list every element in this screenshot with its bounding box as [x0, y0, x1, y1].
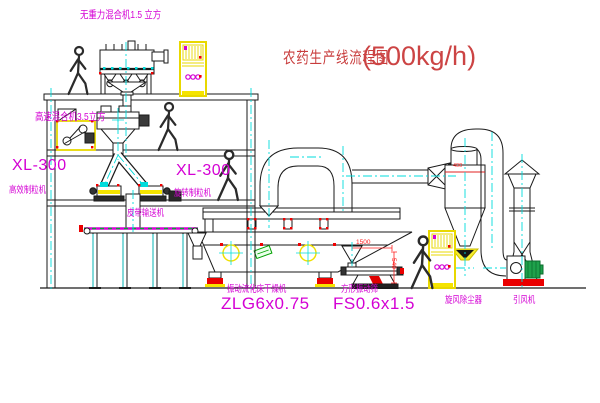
- control-cabinet-1: [180, 42, 206, 96]
- title-capacity: (500kg/h): [362, 43, 476, 70]
- worker-figure: [69, 47, 88, 94]
- belt-conveyor: [79, 225, 206, 288]
- dimension-screen-height: 540: [390, 258, 397, 269]
- cyclone-mark: 400: [453, 164, 462, 170]
- label-belt-conveyor: 皮带输送机: [127, 209, 164, 219]
- dimension-screen-length: 1500: [356, 240, 370, 247]
- induced-draft-fan: [503, 256, 544, 286]
- label-fan: 引风机: [513, 296, 535, 306]
- label-dryer-model: ZLG6x0.75: [221, 295, 310, 312]
- label-screen-model: FS0.6x1.5: [333, 295, 415, 312]
- label-gravity-mixer: 无重力混合机1.5 立方: [80, 10, 161, 21]
- label-high-speed-mixer: 高速混合机3.5立方: [35, 112, 105, 123]
- label-granulator-left-model: XL-300: [12, 158, 67, 174]
- y-chute: [104, 155, 144, 186]
- control-cabinet-2: [429, 231, 455, 288]
- label-cyclone: 旋风除尘器: [445, 296, 482, 306]
- cad-flow-diagram: 无重力混合机1.5 立方 农药生产线流程图 (500kg/h) 高速混合机3.5…: [0, 0, 600, 403]
- dryer-arch-ducts: [260, 148, 352, 216]
- worker-figure: [159, 103, 178, 150]
- label-granulator-mid-model: XL-300: [176, 163, 231, 179]
- label-granulator-left-name: 高效制粒机: [9, 186, 46, 196]
- gravity-free-mixer: [100, 41, 168, 107]
- duct-to-cyclone: [352, 163, 450, 190]
- label-granulator-mid-name: 旋转制粒机: [174, 189, 211, 199]
